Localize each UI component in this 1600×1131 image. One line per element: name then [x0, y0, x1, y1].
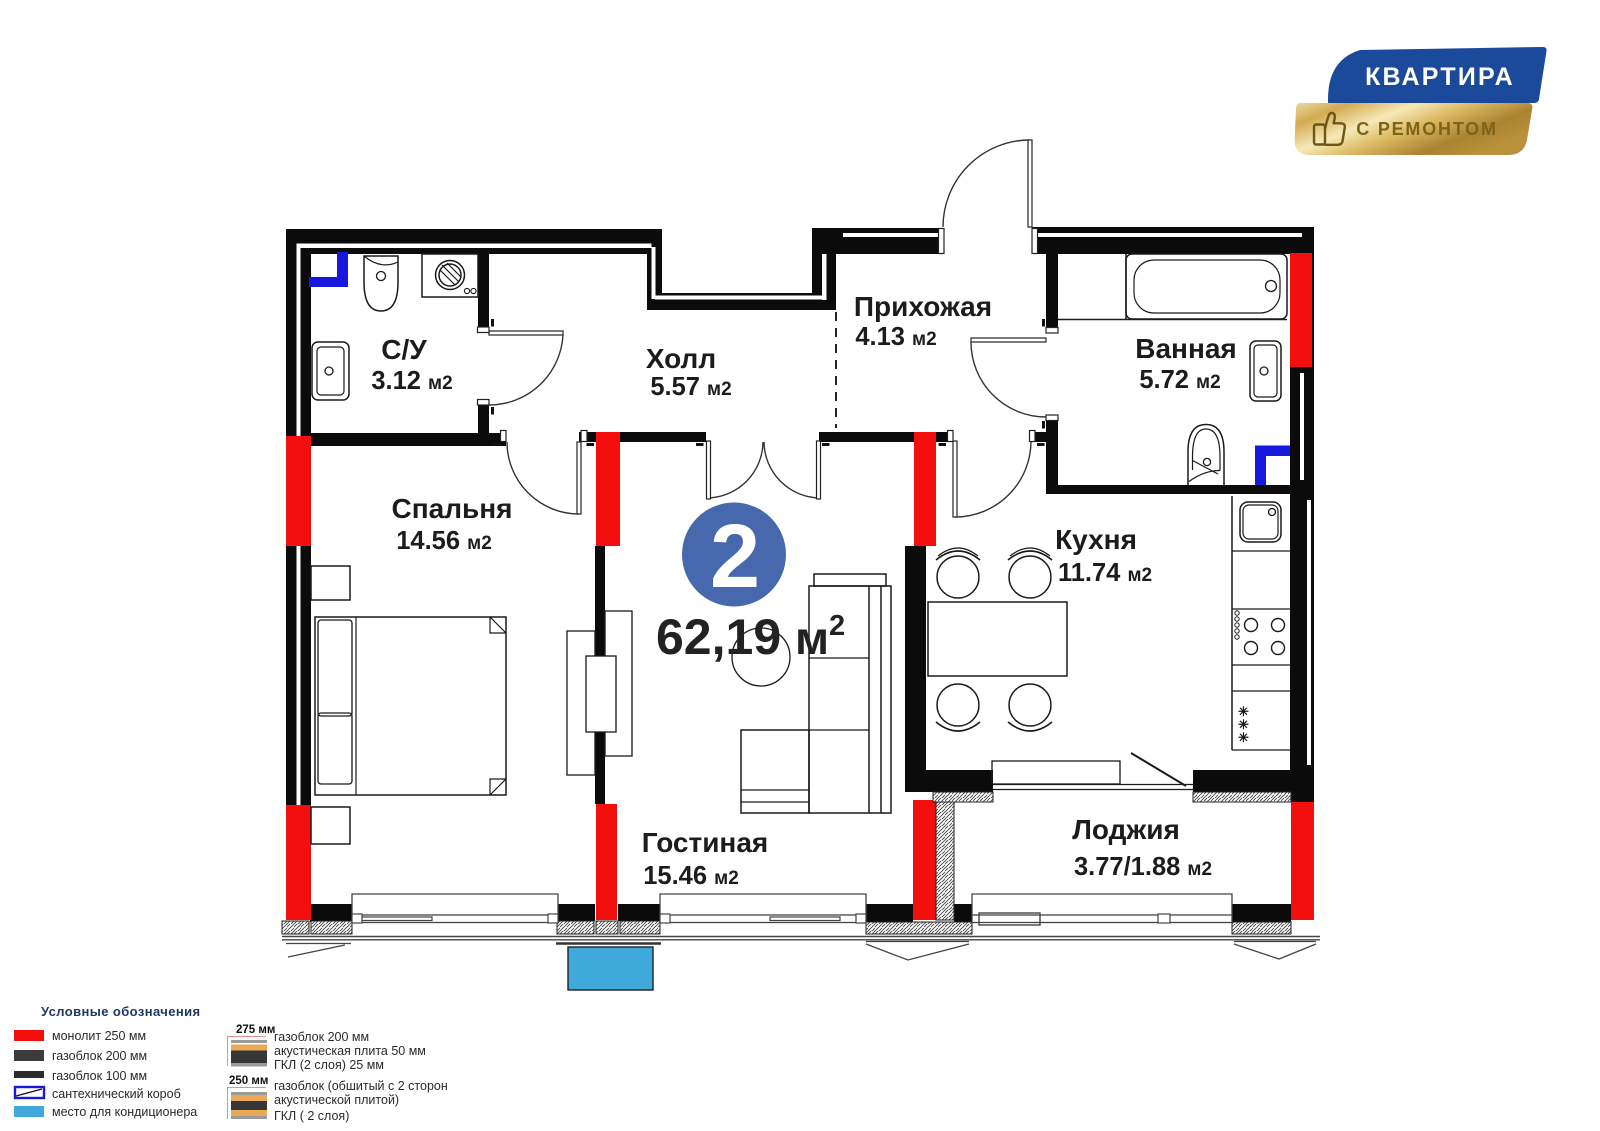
- svg-text:газоблок 200 мм: газоблок 200 мм: [52, 1049, 147, 1063]
- svg-text:газоблок 100 мм: газоблок 100 мм: [52, 1069, 147, 1083]
- svg-text:5.57 м2: 5.57 м2: [650, 373, 731, 401]
- svg-text:ГКЛ (2 слоя) 25 мм: ГКЛ (2 слоя) 25 мм: [274, 1058, 384, 1072]
- svg-text:С РЕМОНТОМ: С РЕМОНТОМ: [1356, 119, 1498, 139]
- svg-text:газоблок 200 мм: газоблок 200 мм: [274, 1030, 369, 1044]
- svg-text:14.56 м2: 14.56 м2: [396, 527, 492, 555]
- svg-text:Ванная: Ванная: [1135, 333, 1237, 364]
- svg-text:ГКЛ ( 2 слоя): ГКЛ ( 2 слоя): [274, 1109, 349, 1123]
- svg-text:сантехнический короб: сантехнический короб: [52, 1087, 181, 1101]
- svg-text:✳: ✳: [1238, 730, 1249, 745]
- svg-text:акустическая плита 50 мм: акустическая плита 50 мм: [274, 1044, 426, 1058]
- svg-text:15.46 м2: 15.46 м2: [643, 862, 739, 890]
- svg-text:Гостиная: Гостиная: [642, 827, 769, 858]
- svg-text:275 мм: 275 мм: [236, 1024, 275, 1036]
- svg-text:Кухня: Кухня: [1055, 524, 1137, 555]
- svg-text:2: 2: [710, 507, 760, 607]
- svg-text:4.13 м2: 4.13 м2: [855, 323, 936, 351]
- svg-text:газоблок (обшитый с 2 сторон: газоблок (обшитый с 2 сторон: [274, 1079, 448, 1093]
- svg-text:место для кондиционера: место для кондиционера: [52, 1105, 197, 1119]
- svg-text:Спальня: Спальня: [392, 493, 513, 524]
- svg-text:Условные обозначения: Условные обозначения: [41, 1004, 200, 1019]
- svg-text:монолит 250 мм: монолит 250 мм: [52, 1029, 146, 1043]
- svg-text:250 мм: 250 мм: [229, 1075, 268, 1087]
- svg-text:62,19 м2: 62,19 м2: [656, 609, 845, 665]
- svg-text:11.74 м2: 11.74 м2: [1058, 559, 1152, 587]
- svg-text:Прихожая: Прихожая: [854, 291, 992, 322]
- svg-text:3.12 м2: 3.12 м2: [371, 367, 452, 395]
- svg-text:3.77/1.88 м2: 3.77/1.88 м2: [1074, 853, 1212, 881]
- svg-text:С/У: С/У: [381, 334, 427, 365]
- svg-text:Холл: Холл: [646, 343, 716, 374]
- svg-text:Лоджия: Лоджия: [1072, 814, 1180, 845]
- svg-text:5.72 м2: 5.72 м2: [1139, 366, 1220, 394]
- svg-text:КВАРТИРА: КВАРТИРА: [1365, 63, 1515, 91]
- svg-text:акустической плитой): акустической плитой): [274, 1093, 399, 1107]
